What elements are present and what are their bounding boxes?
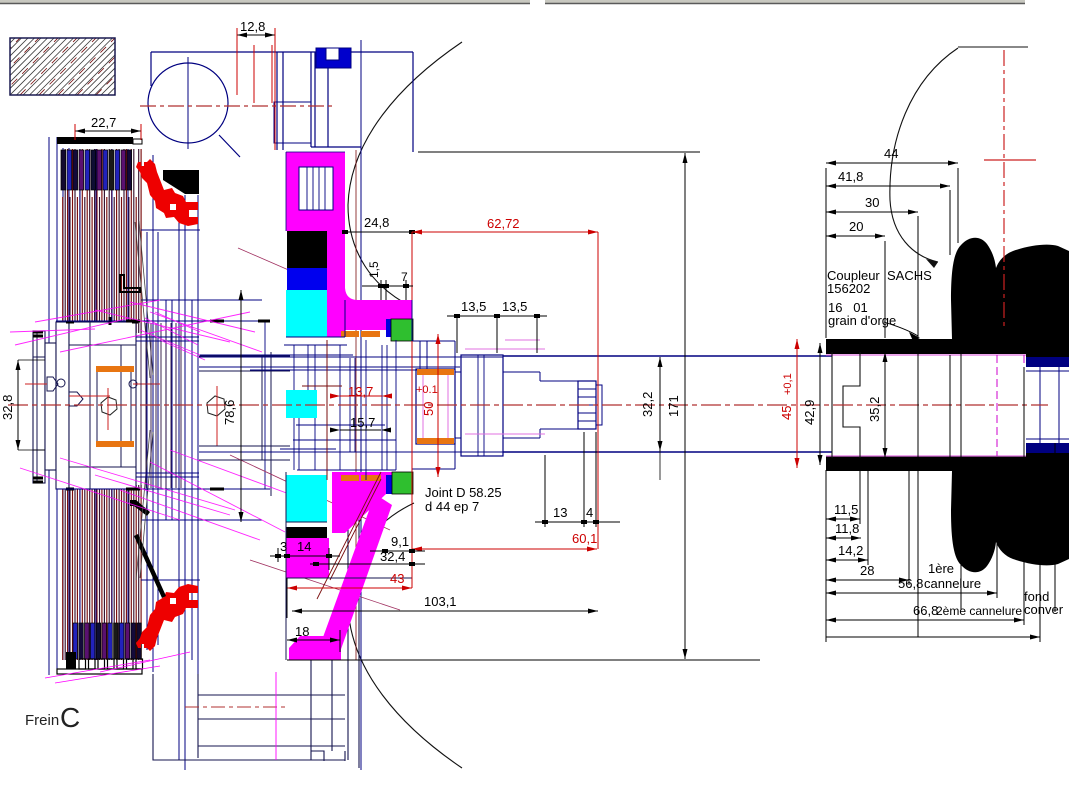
svg-text:171: 171	[666, 395, 681, 417]
svg-text:32,2: 32,2	[640, 392, 655, 417]
svg-text:35,2: 35,2	[867, 397, 882, 422]
svg-text:11,8: 11,8	[835, 521, 859, 536]
svg-text:Joint D 58.25: Joint D 58.25	[425, 485, 502, 500]
svg-text:45: 45	[779, 406, 794, 420]
svg-text:43: 43	[390, 571, 404, 586]
svg-text:3: 3	[280, 539, 287, 554]
svg-text:12,8: 12,8	[240, 19, 265, 34]
svg-text:4: 4	[586, 505, 593, 520]
svg-text:22,7: 22,7	[91, 115, 116, 130]
svg-text:56,8: 56,8	[898, 576, 923, 591]
svg-text:60,1: 60,1	[572, 531, 597, 546]
svg-text:28: 28	[860, 563, 874, 578]
svg-text:13,5: 13,5	[461, 299, 486, 314]
svg-text:2ème cannelure: 2ème cannelure	[936, 604, 1022, 618]
svg-text:32,8: 32,8	[0, 395, 15, 420]
svg-text:1ère: 1ère	[928, 561, 954, 576]
svg-text:11,5: 11,5	[834, 502, 858, 517]
svg-text:44: 44	[884, 146, 898, 161]
svg-text:41,8: 41,8	[838, 169, 863, 184]
svg-text:+0,1: +0,1	[782, 373, 794, 395]
svg-text:18: 18	[295, 624, 309, 639]
svg-text:42,9: 42,9	[802, 400, 817, 425]
svg-text:50: 50	[421, 402, 436, 416]
svg-text:30: 30	[865, 195, 879, 210]
svg-text:20: 20	[849, 219, 863, 234]
svg-text:24,8: 24,8	[364, 215, 389, 230]
svg-text:grain d'orge: grain d'orge	[828, 313, 896, 328]
svg-text:+0.1: +0.1	[416, 384, 438, 396]
svg-text:7: 7	[401, 270, 408, 284]
svg-text:14,2: 14,2	[838, 543, 863, 558]
svg-text:13: 13	[553, 505, 567, 520]
svg-text:66,8: 66,8	[913, 603, 938, 618]
svg-text:14: 14	[297, 539, 311, 554]
svg-text:Frein: Frein	[25, 712, 59, 729]
svg-text:103,1: 103,1	[424, 594, 457, 609]
svg-text:C: C	[60, 702, 80, 733]
svg-text:conver: conver	[1024, 602, 1064, 617]
svg-text:cannelure: cannelure	[924, 576, 981, 591]
svg-text:9,1: 9,1	[391, 534, 409, 549]
svg-text:15,7: 15,7	[350, 415, 375, 430]
svg-text:62,72: 62,72	[487, 216, 520, 231]
svg-text:78,6: 78,6	[222, 400, 237, 425]
svg-text:1,5: 1,5	[367, 261, 381, 278]
svg-text:13,5: 13,5	[502, 299, 527, 314]
svg-text:13,7: 13,7	[348, 384, 373, 399]
svg-text:156202: 156202	[827, 281, 870, 296]
svg-text:d 44 ep 7: d 44 ep 7	[425, 499, 479, 514]
